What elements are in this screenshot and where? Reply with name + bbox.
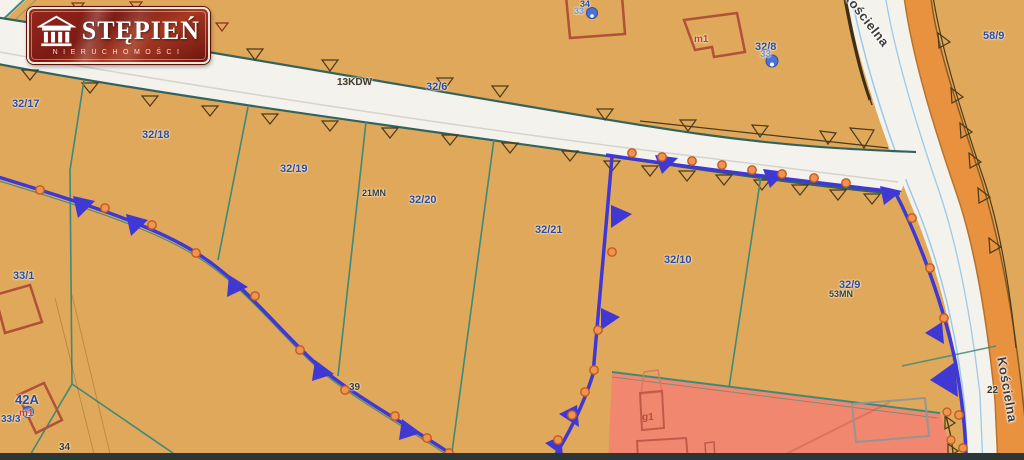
logo-subtitle: NIERUCHOMOŚCI <box>37 49 200 56</box>
building-outline-shape <box>0 285 42 333</box>
terrain-lines <box>55 295 112 460</box>
hatch-triangle <box>642 166 658 176</box>
hatch-triangle <box>262 114 278 124</box>
boundary-point-dot <box>36 186 44 194</box>
hatch-triangle <box>322 60 338 71</box>
label-parcel-32-10: 32/10 <box>664 255 692 266</box>
hatch-triangle <box>142 96 158 106</box>
label-building-m1-top: m1 <box>694 35 708 45</box>
boundary-point-dot <box>148 221 156 229</box>
hatch-triangle <box>830 190 846 200</box>
boundary-point-dot <box>748 166 756 174</box>
zone-pink <box>608 370 958 460</box>
boundary-point-dot <box>908 214 916 222</box>
boundary-point-dot <box>341 386 349 394</box>
label-parcel-32-17: 32/17 <box>12 99 40 110</box>
zone-boundary-blue-shape <box>593 157 612 374</box>
hatch-triangle <box>864 194 880 204</box>
boundary-point-dot <box>842 179 850 187</box>
boundary-point-dot <box>423 434 431 442</box>
boundary-point-dot <box>192 249 200 257</box>
boundary-point-dot <box>718 161 726 169</box>
label-parcel-58-9: 58/9 <box>983 31 1004 42</box>
label-addr-33-right: 33 <box>760 50 771 60</box>
map-edge-bar <box>0 453 1024 460</box>
boundary-point-dot <box>251 292 259 300</box>
map-canvas[interactable]: 32/17 32/18 32/19 21MN 32/20 32/21 32/10… <box>0 0 1024 460</box>
label-zone-22: 22 <box>987 386 998 396</box>
label-parcel-32-18: 32/18 <box>142 130 170 141</box>
label-zone-39: 39 <box>349 383 360 393</box>
boundary-point-dot <box>391 412 399 420</box>
label-parcel-32-20: 32/20 <box>409 195 437 206</box>
hatch-triangle <box>442 135 458 145</box>
hatch-triangle <box>202 106 218 116</box>
parcel-boundary-line <box>218 107 248 260</box>
boundary-point-dot <box>658 153 666 161</box>
boundary-point-dot <box>590 366 598 374</box>
boundary-point-dot <box>568 411 576 419</box>
parcel-boundary-line <box>72 384 186 460</box>
label-parcel-34: 34 <box>59 443 70 453</box>
hatch-triangle <box>850 128 874 148</box>
zone-boundary-blue-shape <box>0 176 457 458</box>
hatch-triangle <box>82 83 98 93</box>
hatch-triangle <box>716 175 732 185</box>
boundary-point-dot <box>926 264 934 272</box>
label-building-m1-bottom: m1 <box>19 409 33 419</box>
boundary-point-dot <box>554 436 562 444</box>
hatch-triangle <box>679 171 695 181</box>
boundary-point-dot <box>594 326 602 334</box>
zone-pink-shape <box>947 436 955 444</box>
label-addr-42a: 42A <box>15 393 39 406</box>
boundary-point-dot <box>608 248 616 256</box>
parcel-boundary-line <box>729 176 761 388</box>
hatch-triangle <box>754 180 770 190</box>
parcel-boundary-line <box>338 122 366 376</box>
hatch-triangle <box>216 23 228 31</box>
label-zone-21mn: 21MN <box>362 189 386 198</box>
label-parcel-33-1: 33/1 <box>13 271 34 282</box>
label-addr-33-top: 33 <box>574 7 584 16</box>
logo-title: STĘPIEŃ <box>82 16 200 46</box>
label-parcel-32-6: 32/6 <box>426 82 447 93</box>
boundary-point-dot <box>581 388 589 396</box>
label-parcel-33-3: 33/3 <box>1 415 20 425</box>
zone-boundary-blue-shape <box>925 322 944 344</box>
zone-boundary-blue-shape <box>0 180 458 460</box>
hatch-triangle <box>792 185 808 195</box>
hatch-triangle <box>382 128 398 138</box>
poi-marker-icon[interactable] <box>587 8 598 19</box>
logo-stepien-nieruchomosci: STĘPIEŃ NIERUCHOMOŚCI <box>27 7 210 64</box>
label-zone-13kdw: 13KDW <box>337 78 372 88</box>
building-portico-icon <box>37 15 76 47</box>
hatch-triangle <box>322 121 338 131</box>
zone-boundary-blue-shape <box>611 205 632 228</box>
map-layers <box>0 0 1024 460</box>
terrain-line <box>55 298 96 460</box>
boundary-point-dot <box>810 174 818 182</box>
zone-boundary-blue-shape <box>930 362 958 397</box>
parcel-boundary-line <box>452 139 494 452</box>
boundary-point-dot <box>959 444 967 452</box>
boundary-point-dot <box>955 411 963 419</box>
boundary-point-dot <box>940 314 948 322</box>
label-building-g1: g1 <box>642 413 654 423</box>
zone-boundary-blue-shape <box>601 308 620 330</box>
zone-pink-shape <box>943 408 951 416</box>
label-zone-53mn: 53MN <box>829 290 853 299</box>
label-parcel-32-19: 32/19 <box>280 164 308 175</box>
zone-pink-shape <box>608 372 951 460</box>
hatch-triangle <box>492 86 508 97</box>
boundary-point-dot <box>101 204 109 212</box>
boundary-point-dot <box>296 346 304 354</box>
terrain-line <box>72 295 112 460</box>
label-parcel-32-21: 32/21 <box>535 225 563 236</box>
hatch-triangle <box>502 143 518 153</box>
boundary-point-dot <box>778 170 786 178</box>
boundary-point-dot <box>688 157 696 165</box>
boundary-point-dot <box>628 149 636 157</box>
